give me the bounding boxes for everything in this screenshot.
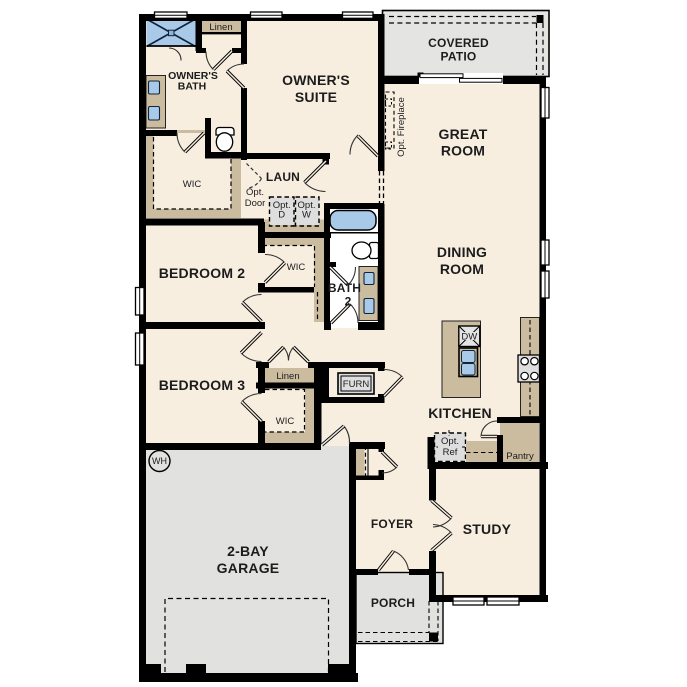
svg-text:WIC: WIC [287, 262, 306, 273]
svg-text:ROOM: ROOM [440, 261, 484, 277]
svg-text:GREAT: GREAT [439, 126, 488, 142]
svg-text:DW: DW [461, 332, 477, 343]
svg-text:PATIO: PATIO [441, 50, 477, 64]
svg-text:BATH: BATH [178, 81, 206, 93]
svg-text:BATH: BATH [328, 281, 361, 295]
svg-text:D: D [278, 210, 285, 221]
svg-text:KITCHEN: KITCHEN [428, 405, 492, 421]
svg-text:Opt.: Opt. [441, 436, 459, 447]
svg-text:BEDROOM 3: BEDROOM 3 [159, 377, 246, 393]
svg-text:Door: Door [245, 198, 266, 209]
svg-text:Pantry: Pantry [506, 451, 534, 462]
svg-text:FOYER: FOYER [371, 517, 413, 531]
svg-text:Linen: Linen [209, 22, 232, 33]
svg-text:Opt. Fireplace: Opt. Fireplace [396, 97, 407, 157]
svg-text:WIC: WIC [183, 179, 202, 190]
svg-text:STUDY: STUDY [463, 521, 512, 537]
svg-text:2-BAY: 2-BAY [227, 543, 269, 559]
svg-text:2: 2 [345, 295, 352, 309]
svg-text:LAUN: LAUN [266, 170, 300, 184]
svg-text:COVERED: COVERED [428, 36, 489, 50]
svg-text:WIC: WIC [276, 416, 295, 427]
svg-text:WH: WH [152, 456, 167, 466]
svg-text:Linen: Linen [276, 371, 299, 382]
svg-text:SUITE: SUITE [295, 89, 337, 105]
svg-text:FURN: FURN [343, 379, 370, 390]
svg-text:PORCH: PORCH [371, 596, 415, 610]
svg-text:W: W [302, 210, 311, 221]
svg-text:GARAGE: GARAGE [217, 560, 280, 576]
svg-text:ROOM: ROOM [441, 143, 485, 159]
svg-text:Ref: Ref [443, 447, 458, 458]
svg-text:BEDROOM 2: BEDROOM 2 [159, 265, 246, 281]
svg-text:Opt.: Opt. [246, 187, 264, 198]
svg-text:DINING: DINING [437, 244, 487, 260]
svg-text:OWNER'S: OWNER'S [282, 72, 350, 88]
